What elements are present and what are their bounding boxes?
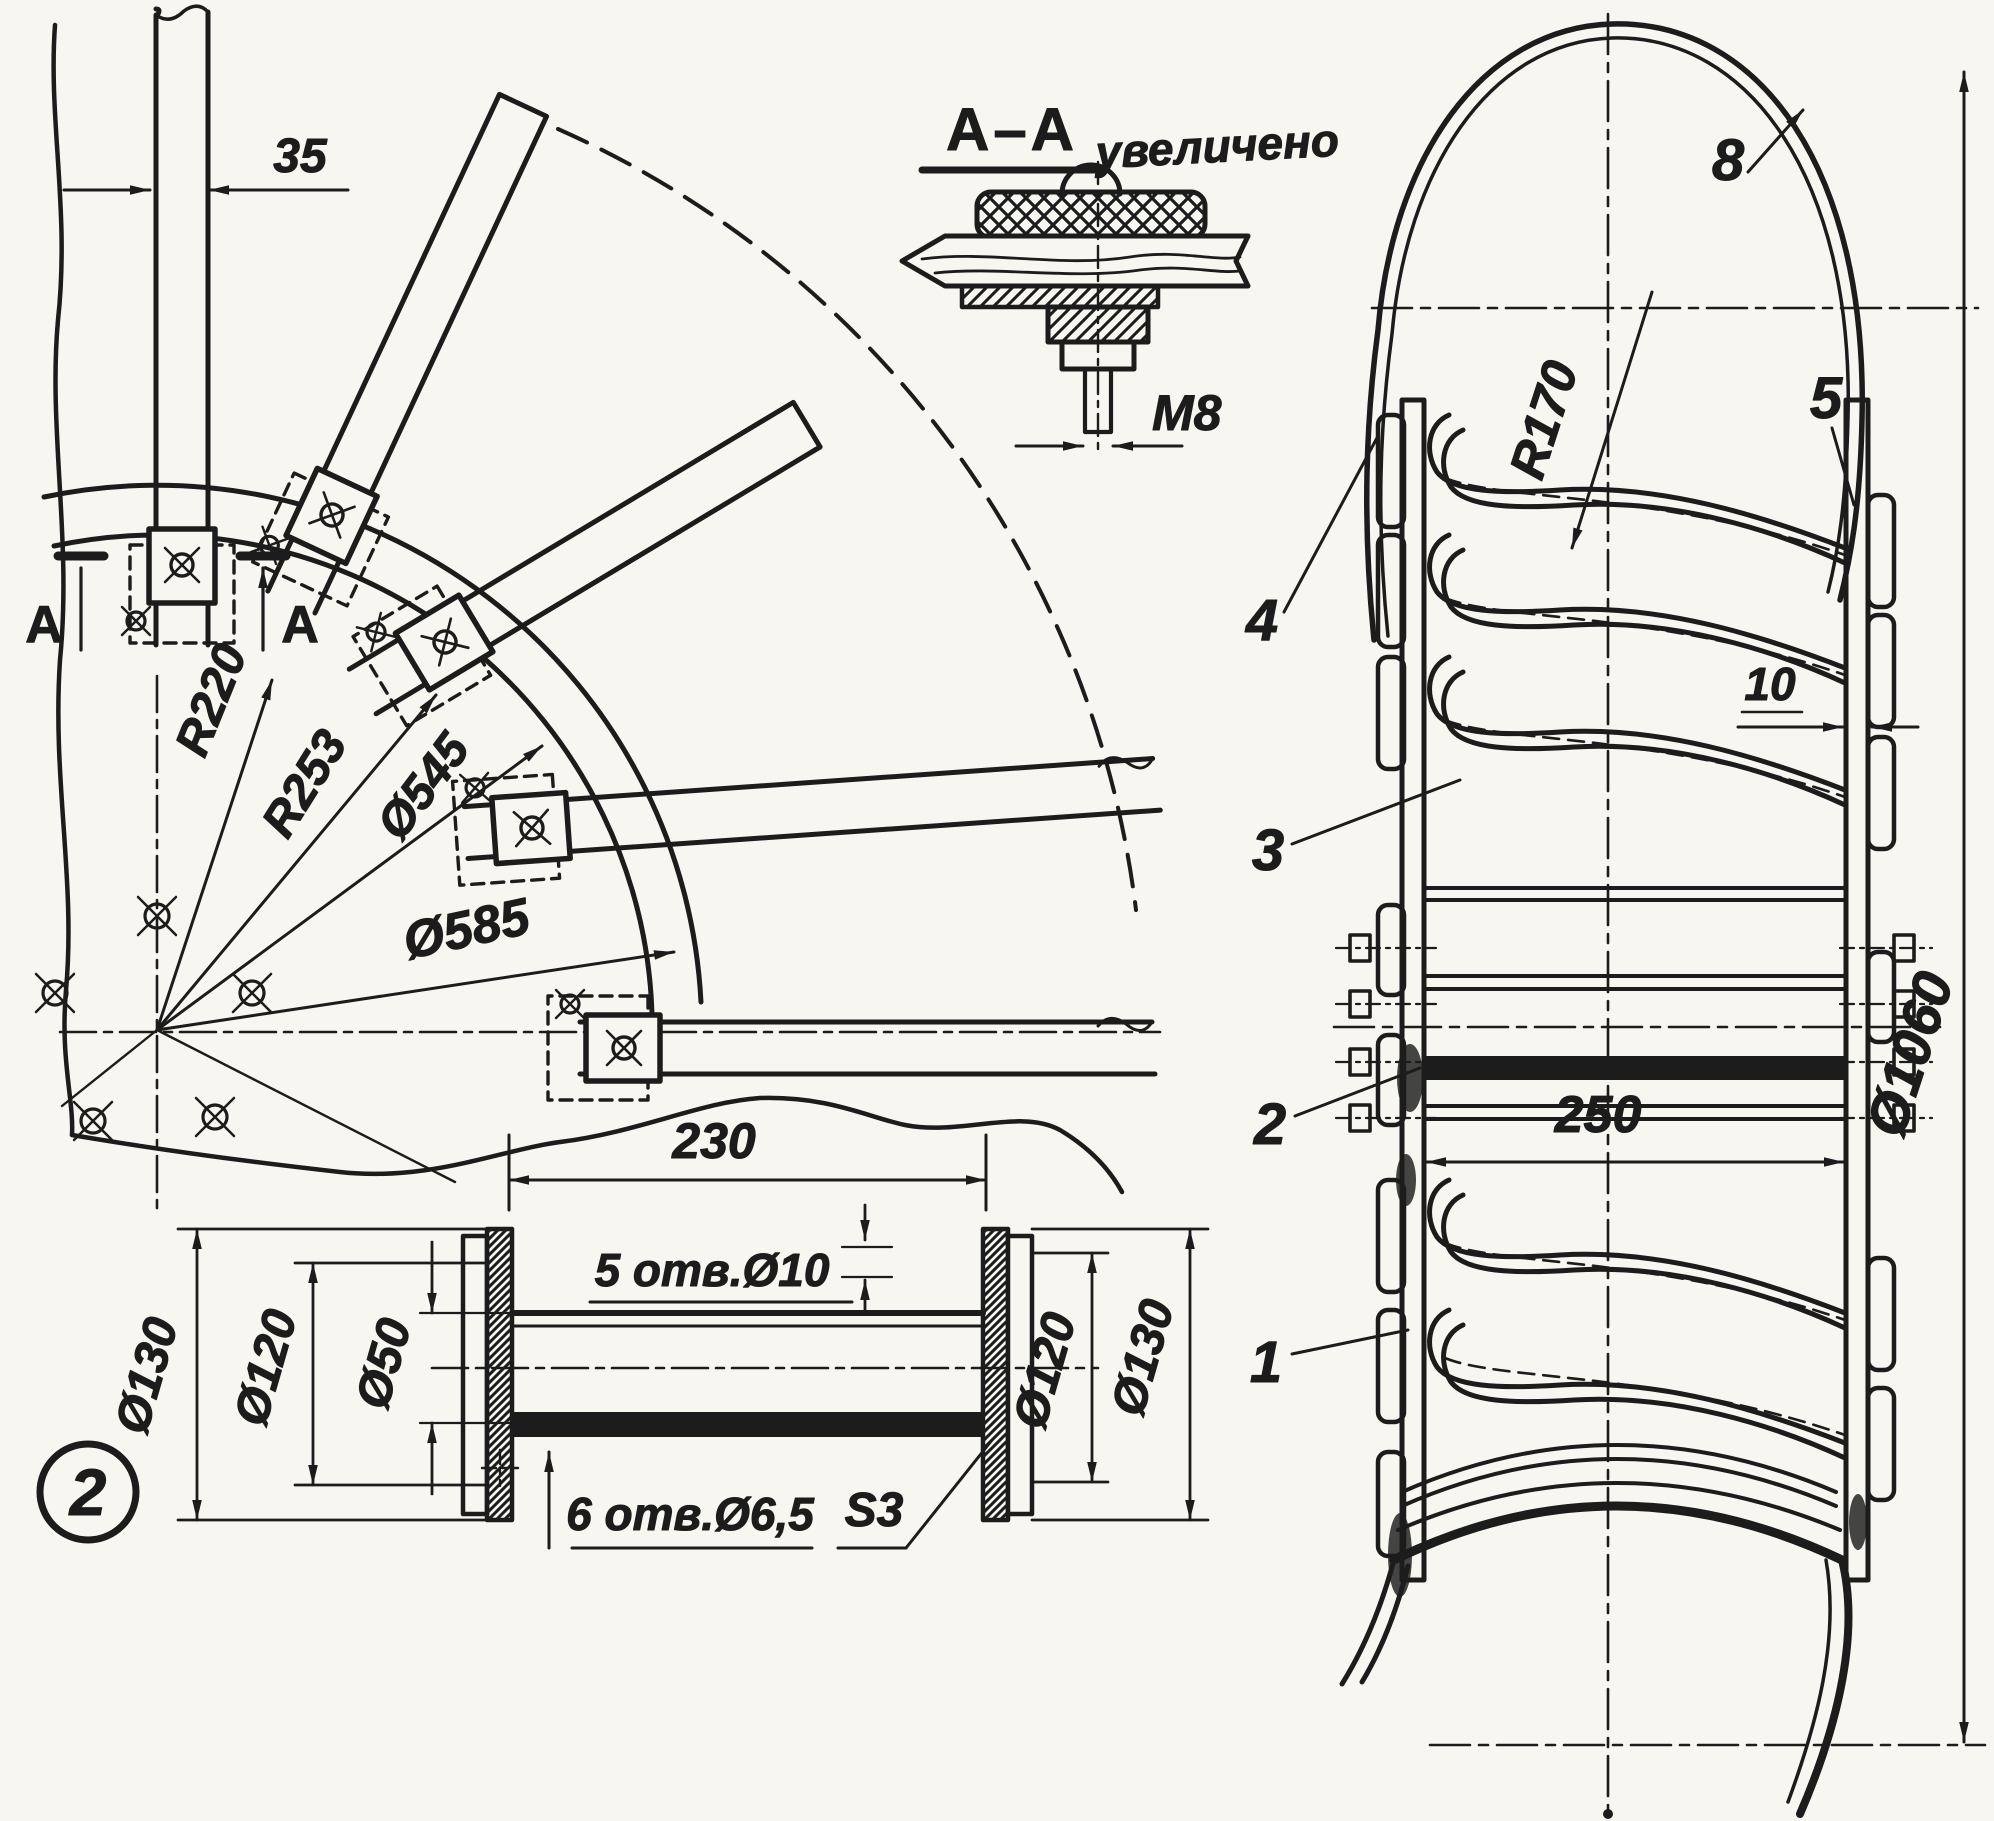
dim-dia-rim: Ø585 xyxy=(398,888,536,971)
dim-holes-bottom: 6 отв.Ø6,5 xyxy=(566,1488,815,1540)
dim-hub-width: 250 xyxy=(1554,1086,1642,1144)
drawing-page: 35 R220 R253 Ø545 Ø585 А А А–А увеличено… xyxy=(0,0,1994,1821)
flange-right xyxy=(983,1229,1008,1520)
rim-strip-right xyxy=(1846,400,1868,1580)
blade-clamp-5 xyxy=(548,990,660,1100)
rim-arc-inner xyxy=(54,535,652,1013)
section-detail: А–А увеличено М8 xyxy=(902,96,1340,452)
blade-1 xyxy=(1430,415,1845,563)
dim-strip-thickness: 10 xyxy=(1744,658,1796,710)
flange-left xyxy=(487,1229,512,1520)
flange-left-cap xyxy=(463,1236,487,1514)
part-strip-left: 1 xyxy=(1250,1330,1282,1395)
dim-blade-radius: R170 xyxy=(1499,354,1589,485)
dim-radius-inner: R220 xyxy=(166,637,258,764)
technical-drawing: 35 R220 R253 Ø545 Ø585 А А А–А увеличено… xyxy=(0,0,1994,1821)
hub-cross-members xyxy=(1424,888,1846,1119)
dim-flange-left-outer: Ø130 xyxy=(105,1312,188,1440)
part-tire: 4 xyxy=(1245,588,1278,653)
dim-radius-outer: R253 xyxy=(252,721,358,847)
part-strip-right: 5 xyxy=(1810,366,1843,431)
dim-dia-clamp-circle: Ø545 xyxy=(367,723,481,850)
section-title: А–А xyxy=(946,96,1078,163)
blade-4 xyxy=(1430,1180,1845,1328)
dim-flange-right-outer: Ø130 xyxy=(1101,1294,1184,1422)
part-tube: 8 xyxy=(1712,128,1745,193)
dim-hub-length: 230 xyxy=(671,1113,756,1169)
section-letter-right: А xyxy=(281,596,319,654)
part-blade: 3 xyxy=(1252,818,1284,883)
dim-holes-top: 5 отв.Ø10 xyxy=(595,1244,830,1296)
plan-view: 35 R220 R253 Ø545 Ø585 А А xyxy=(25,6,1162,1215)
tube-bottom-band xyxy=(512,1412,983,1437)
dim-spoke-width: 35 xyxy=(273,130,328,183)
part-bolt: 2 xyxy=(1253,1092,1286,1157)
figure-number-text: 2 xyxy=(68,1455,107,1529)
section-letter-left: А xyxy=(25,596,63,654)
section-note: увеличено xyxy=(1092,114,1340,179)
hub-detail: 230 5 отв.Ø10 6 отв.Ø6,5 S3 Ø130 Ø120 Ø5… xyxy=(105,1113,1208,1548)
spoke-bar-horizontal xyxy=(580,1018,1158,1074)
torn-edge-bottom xyxy=(72,1098,1122,1192)
steel-strip-section xyxy=(962,286,1158,307)
dim-sheet-thickness: S3 xyxy=(845,1484,904,1537)
tire-outline-outer xyxy=(1367,24,1862,640)
tire-outline-inner xyxy=(1381,38,1848,636)
dim-thread: М8 xyxy=(1152,385,1222,441)
tire-bottom xyxy=(1342,1445,1848,1814)
hole-size-marks xyxy=(842,1205,892,1314)
blade-radius-leader xyxy=(1572,292,1652,548)
blade-5 xyxy=(1430,1310,1845,1458)
dim-tube: Ø50 xyxy=(346,1313,422,1415)
side-view: R170 10 250 Ø1060 8 5 4 3 2 1 xyxy=(1245,14,1985,1819)
dim-flange-left-bolt: Ø120 xyxy=(224,1304,307,1432)
rubber-pad-section xyxy=(977,192,1205,238)
figure-number: 2 xyxy=(40,1444,136,1540)
